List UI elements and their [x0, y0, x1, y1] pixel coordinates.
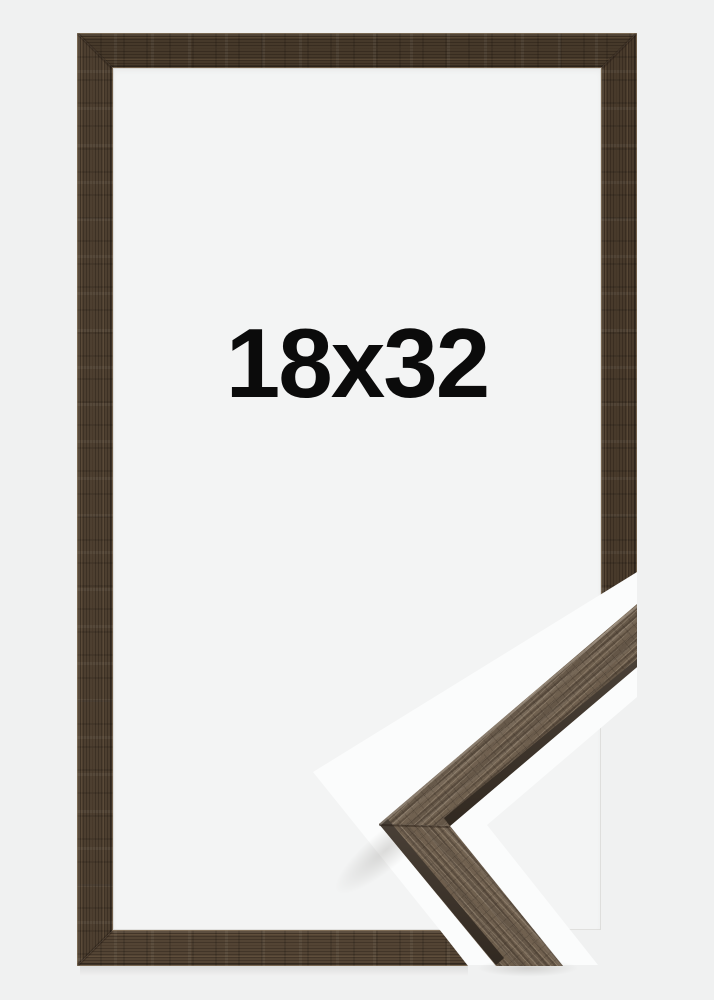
- frame-bottom-shadow: [80, 966, 468, 976]
- frame-product-photo: 18x32: [0, 0, 714, 1000]
- size-label: 18x32: [113, 314, 601, 412]
- frame-rail-top: [77, 33, 637, 68]
- frame-rail-right: [601, 33, 637, 596]
- frame-rail-bottom: [77, 930, 468, 966]
- frame-rail-left: [77, 33, 113, 966]
